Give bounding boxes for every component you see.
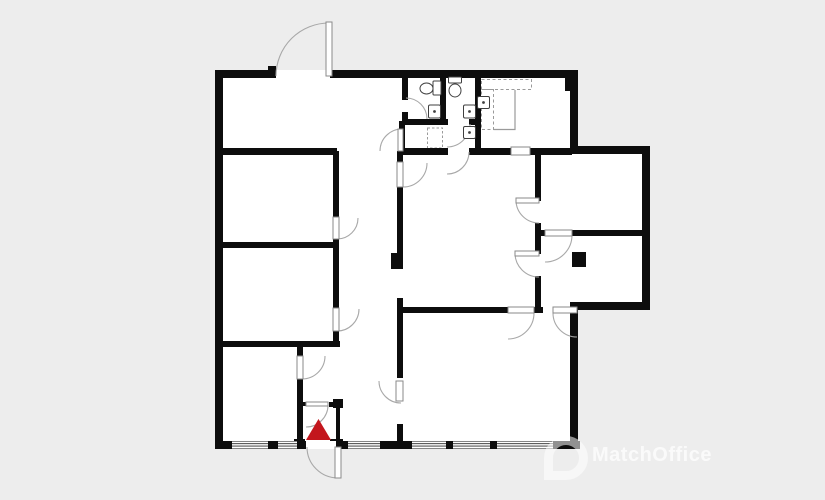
wall (397, 151, 403, 163)
wall (217, 148, 337, 155)
window (232, 442, 268, 449)
wall (570, 146, 650, 154)
window (348, 442, 380, 449)
wall (570, 302, 650, 310)
window (412, 442, 446, 449)
wall (572, 230, 650, 236)
wall (570, 302, 578, 448)
wall-opening (306, 441, 336, 449)
door-leaf (297, 356, 303, 379)
wall (402, 78, 408, 100)
floor-plan (0, 0, 825, 500)
wall (333, 331, 339, 345)
door-leaf (508, 307, 534, 313)
sink-drain-dot (468, 110, 471, 113)
wall (268, 66, 276, 77)
sink-drain-dot (468, 131, 471, 134)
door-leaf (396, 381, 403, 401)
door-leaf (333, 308, 339, 331)
wall (642, 146, 650, 310)
wall (572, 252, 586, 267)
wall (217, 341, 340, 347)
toilet-tank-icon (449, 77, 462, 83)
wall (333, 151, 339, 217)
wall (297, 379, 303, 448)
wall (535, 223, 541, 254)
window (453, 442, 490, 449)
door-leaf (306, 402, 328, 406)
wall (397, 424, 403, 448)
floor-area (560, 146, 650, 310)
toilet-bowl-icon (420, 83, 433, 94)
door-leaf (335, 447, 341, 478)
door-leaf (326, 22, 332, 76)
floorplan-page: MatchOffice (0, 0, 825, 500)
wall (217, 242, 338, 248)
door-leaf (516, 198, 539, 203)
wall (391, 253, 403, 269)
door-leaf (545, 230, 572, 236)
wall (215, 70, 276, 78)
toilet-bowl-icon (449, 84, 461, 97)
door-leaf (398, 129, 403, 151)
toilet-tank-icon (433, 81, 441, 95)
wall (403, 148, 448, 155)
wall (397, 187, 403, 253)
wall (535, 230, 546, 236)
door-leaf (553, 307, 577, 313)
sink-drain-dot (433, 110, 436, 113)
sink-drain-dot (482, 101, 485, 104)
door-leaf (397, 162, 403, 187)
wall (333, 239, 339, 309)
door-leaf (333, 217, 339, 239)
window (278, 442, 297, 449)
window (497, 442, 553, 449)
door-leaf (515, 251, 539, 256)
wall (403, 307, 509, 313)
door-leaf (511, 147, 530, 155)
wall (215, 70, 223, 448)
wall (397, 298, 403, 378)
wall (565, 78, 578, 91)
wall (297, 341, 303, 356)
wall (535, 151, 541, 201)
